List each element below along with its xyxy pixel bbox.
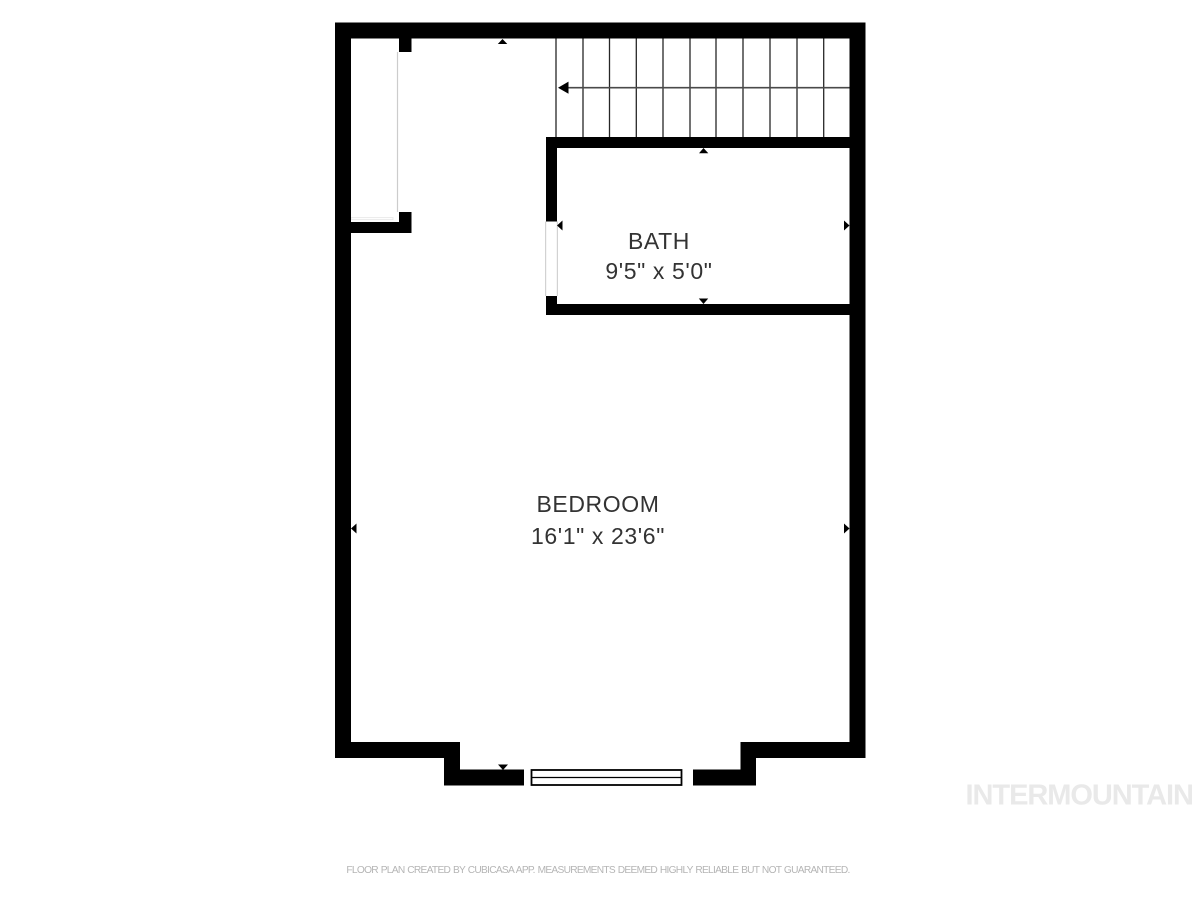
svg-text:BATH: BATH [628, 228, 690, 254]
svg-text:BEDROOM: BEDROOM [536, 491, 659, 517]
svg-text:16'1" x 23'6": 16'1" x 23'6" [531, 523, 665, 549]
svg-text:INTERMOUNTAIN: INTERMOUNTAIN [966, 780, 1193, 812]
svg-text:FLOOR PLAN CREATED BY CUBICASA: FLOOR PLAN CREATED BY CUBICASA APP. MEAS… [346, 865, 849, 876]
svg-text:9'5" x 5'0": 9'5" x 5'0" [605, 258, 712, 284]
